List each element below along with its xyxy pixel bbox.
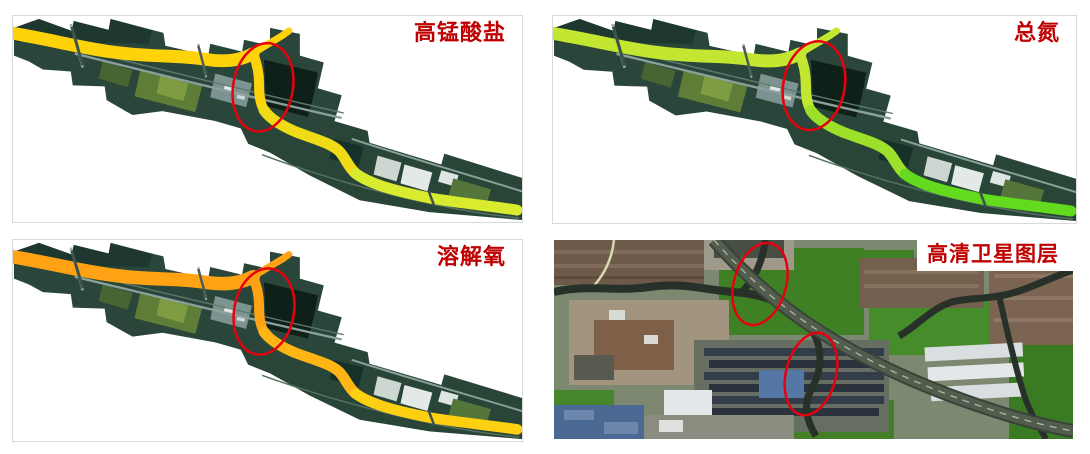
panel-label-total-nitrogen: 总氮: [1014, 21, 1060, 47]
panel-hd-satellite: 高清卫星图层: [554, 240, 1073, 439]
panel-permanganate: 高锰酸盐: [12, 15, 523, 223]
total-nitrogen-map-image: [553, 16, 1076, 223]
panel-total-nitrogen: 总氮: [552, 15, 1077, 224]
panel-label-dissolved-oxygen: 溶解氧: [437, 245, 506, 271]
panel-dissolved-oxygen: 溶解氧: [12, 239, 523, 442]
panel-label-permanganate: 高锰酸盐: [414, 21, 506, 47]
panel-label-hd-satellite: 高清卫星图层: [917, 240, 1073, 271]
